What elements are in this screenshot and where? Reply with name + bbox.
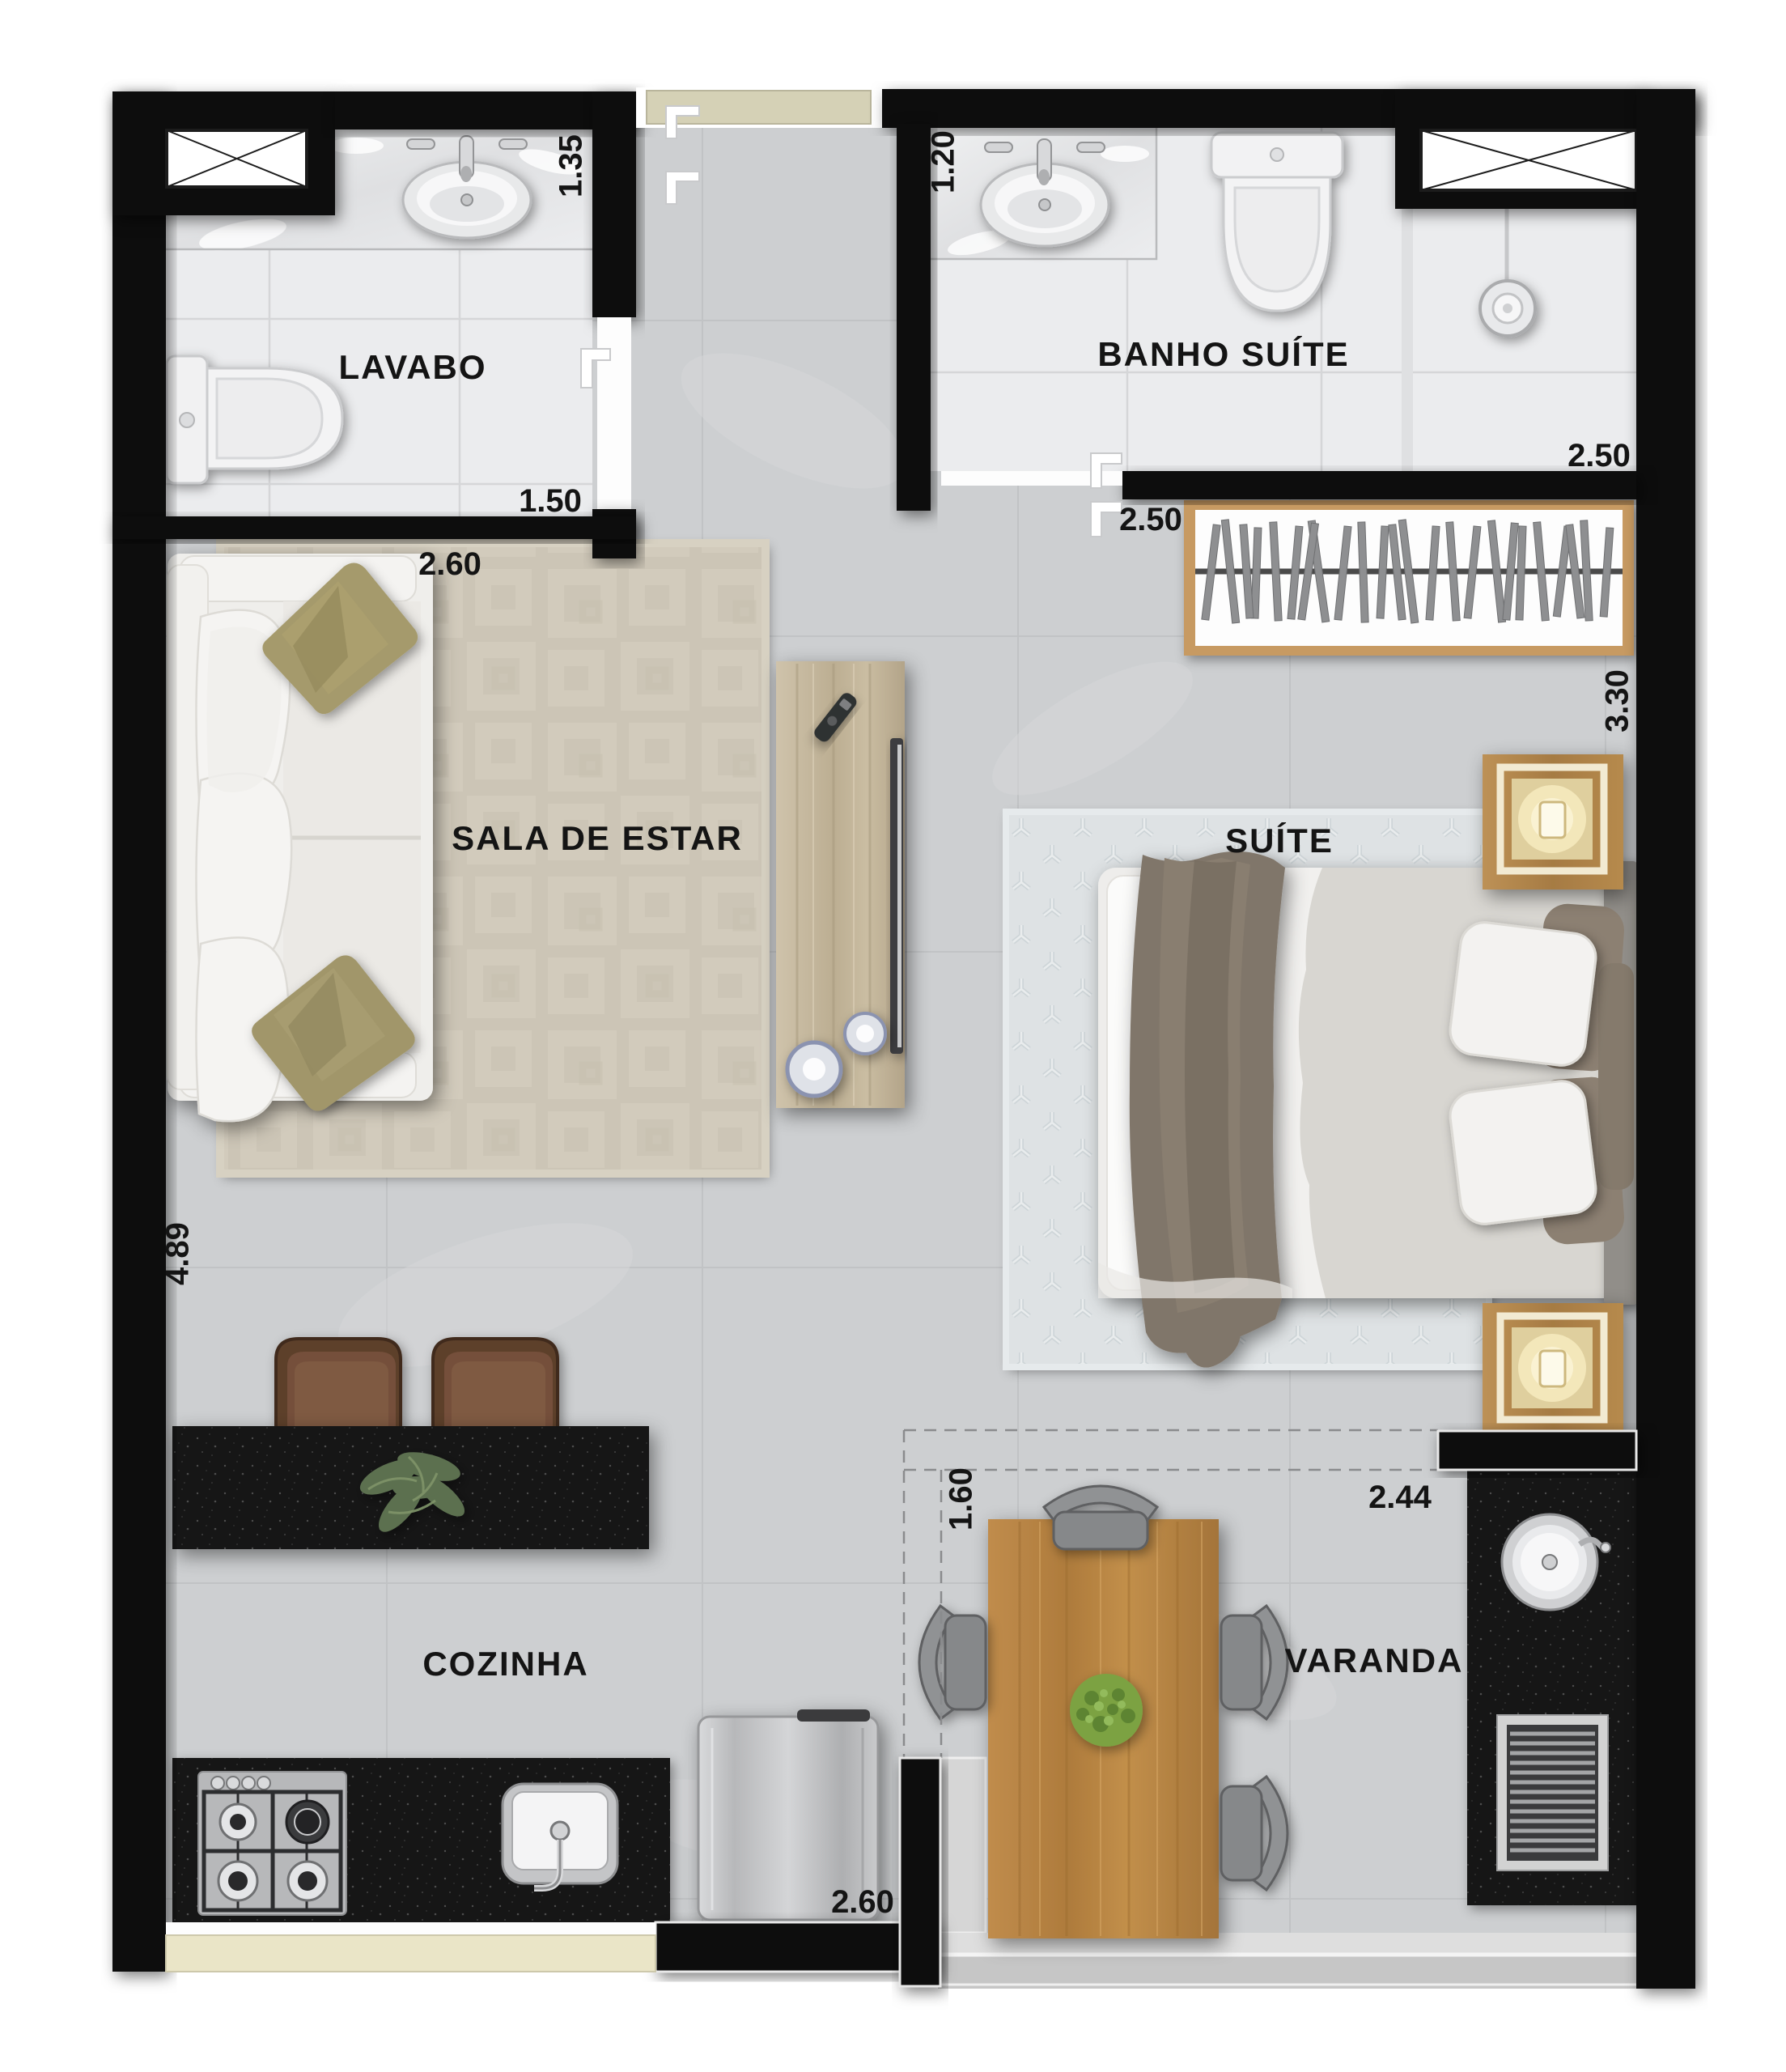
- svg-text:4.89: 4.89: [160, 1222, 196, 1285]
- svg-text:BANHO SUÍTE: BANHO SUÍTE: [1097, 335, 1349, 373]
- svg-text:3.30: 3.30: [1600, 669, 1635, 732]
- svg-text:2.60: 2.60: [418, 546, 481, 582]
- svg-text:SALA DE ESTAR: SALA DE ESTAR: [452, 819, 743, 857]
- svg-text:1.50: 1.50: [519, 483, 582, 519]
- svg-text:LAVABO: LAVABO: [338, 348, 486, 386]
- svg-text:VARANDA: VARANDA: [1285, 1641, 1464, 1679]
- svg-text:SUÍTE: SUÍTE: [1225, 822, 1334, 860]
- svg-text:2.60: 2.60: [831, 1884, 894, 1920]
- svg-text:1.20: 1.20: [926, 130, 961, 193]
- svg-text:COZINHA: COZINHA: [422, 1645, 588, 1683]
- svg-text:2.50: 2.50: [1568, 438, 1631, 473]
- svg-text:1.60: 1.60: [944, 1467, 979, 1531]
- svg-text:2.50: 2.50: [1119, 502, 1182, 537]
- svg-text:1.35: 1.35: [554, 134, 589, 197]
- svg-text:2.44: 2.44: [1368, 1480, 1432, 1515]
